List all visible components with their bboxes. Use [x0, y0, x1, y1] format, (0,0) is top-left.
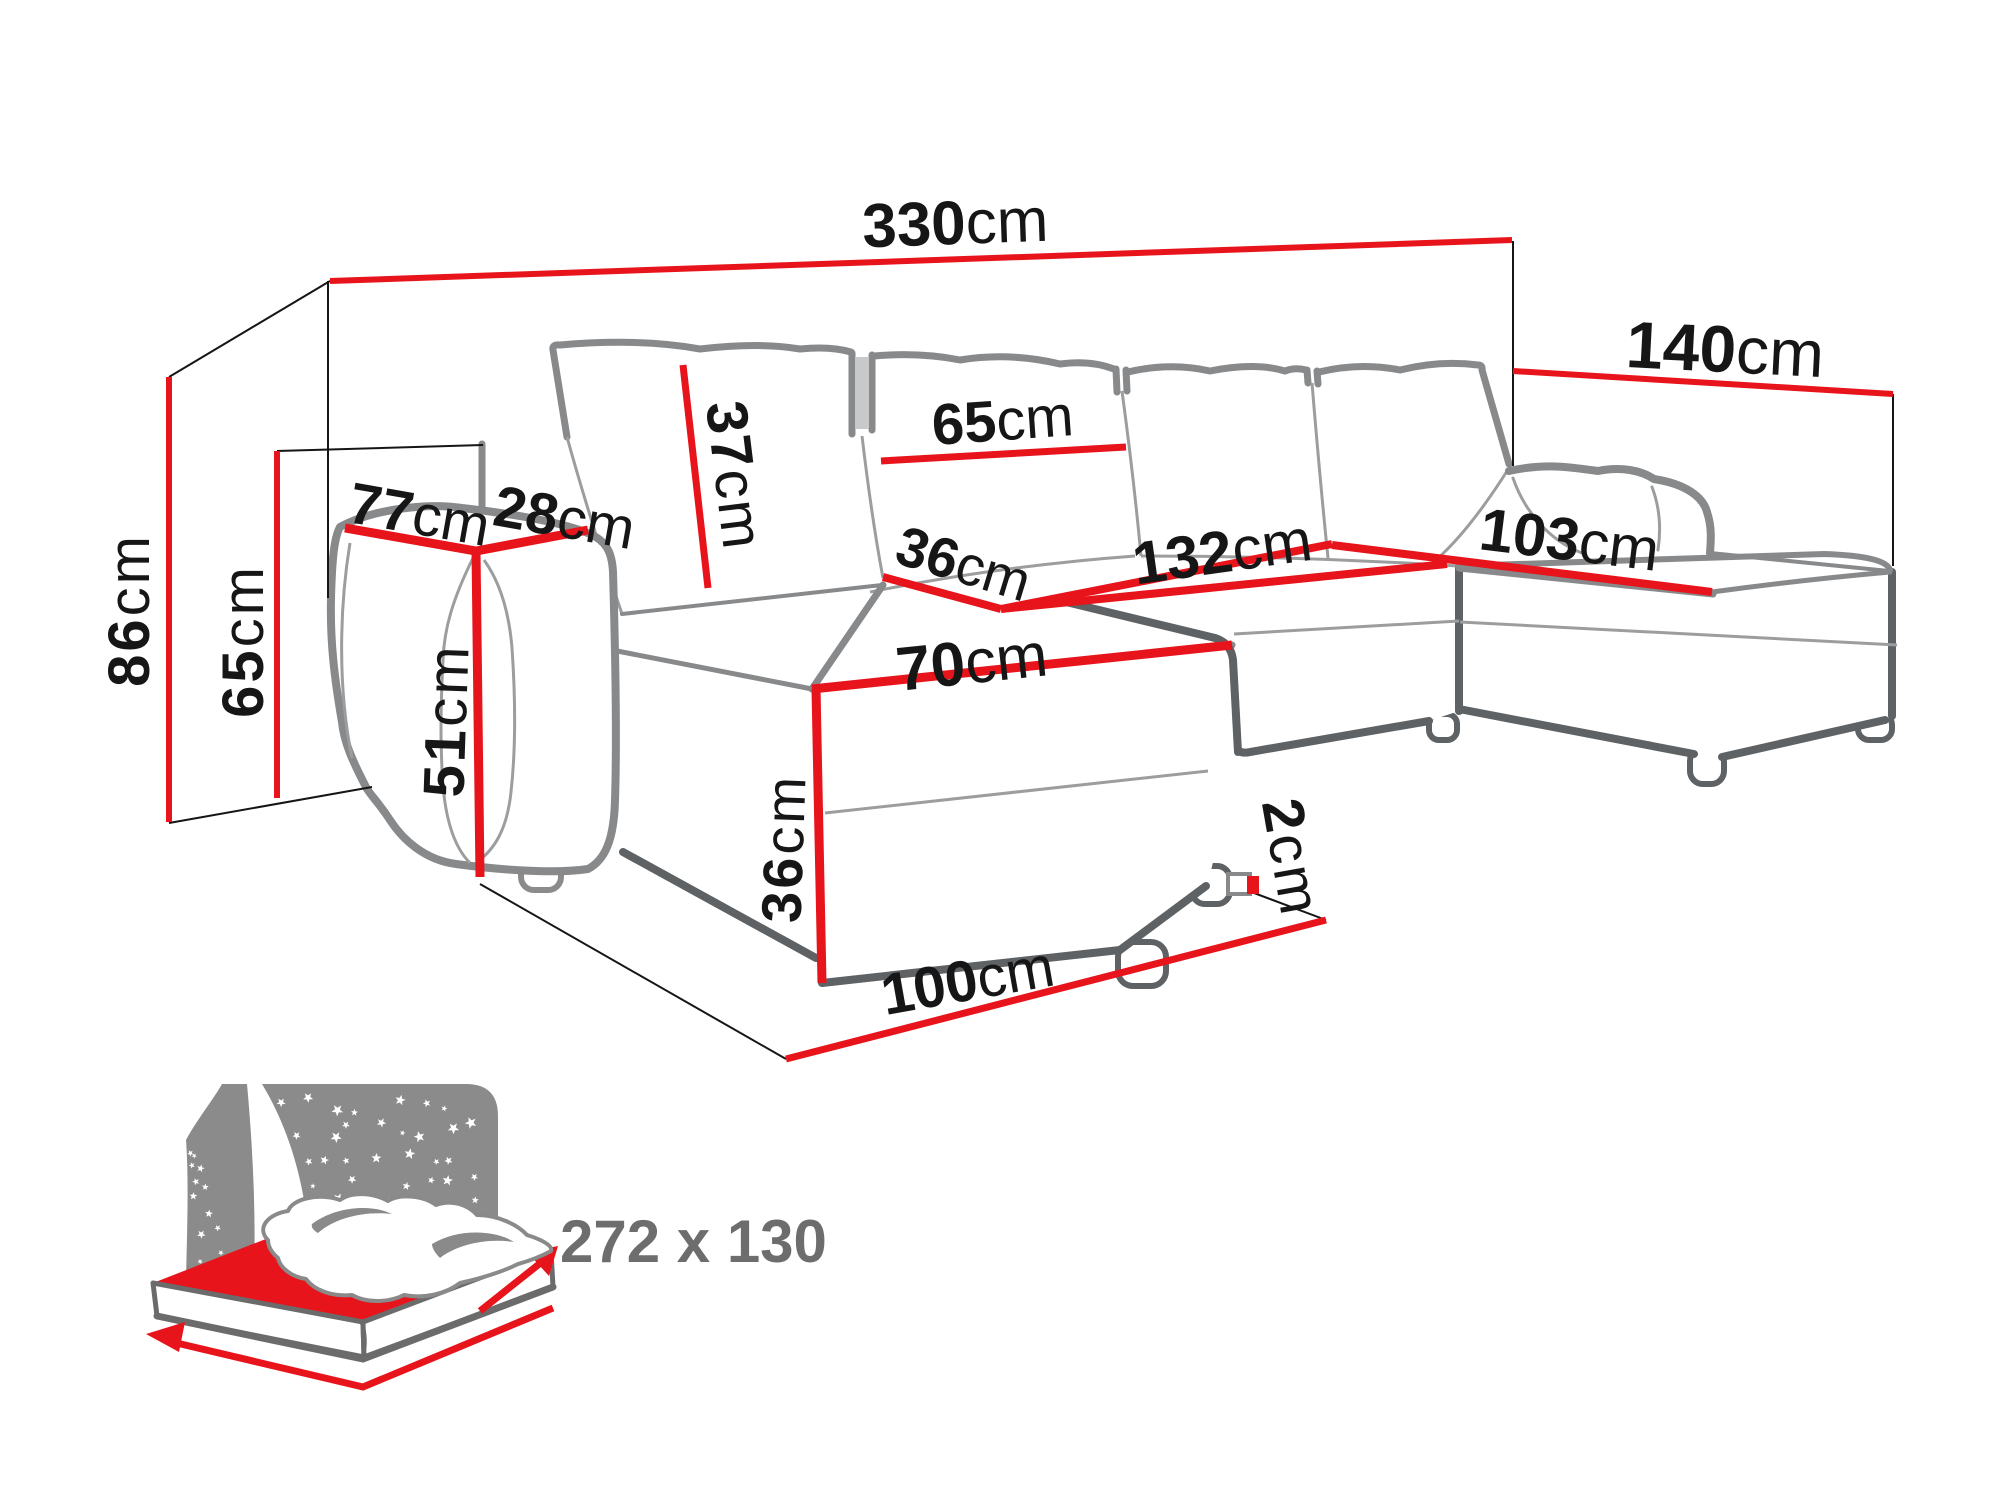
svg-text:140cm: 140cm	[1624, 307, 1826, 391]
svg-text:65cm: 65cm	[930, 383, 1076, 458]
svg-text:272 x 130: 272 x 130	[560, 1208, 827, 1275]
svg-text:330cm: 330cm	[861, 186, 1049, 261]
svg-text:51cm: 51cm	[411, 642, 481, 798]
svg-text:86cm: 86cm	[97, 533, 162, 687]
svg-text:36cm: 36cm	[749, 773, 817, 924]
svg-text:65cm: 65cm	[211, 564, 276, 718]
